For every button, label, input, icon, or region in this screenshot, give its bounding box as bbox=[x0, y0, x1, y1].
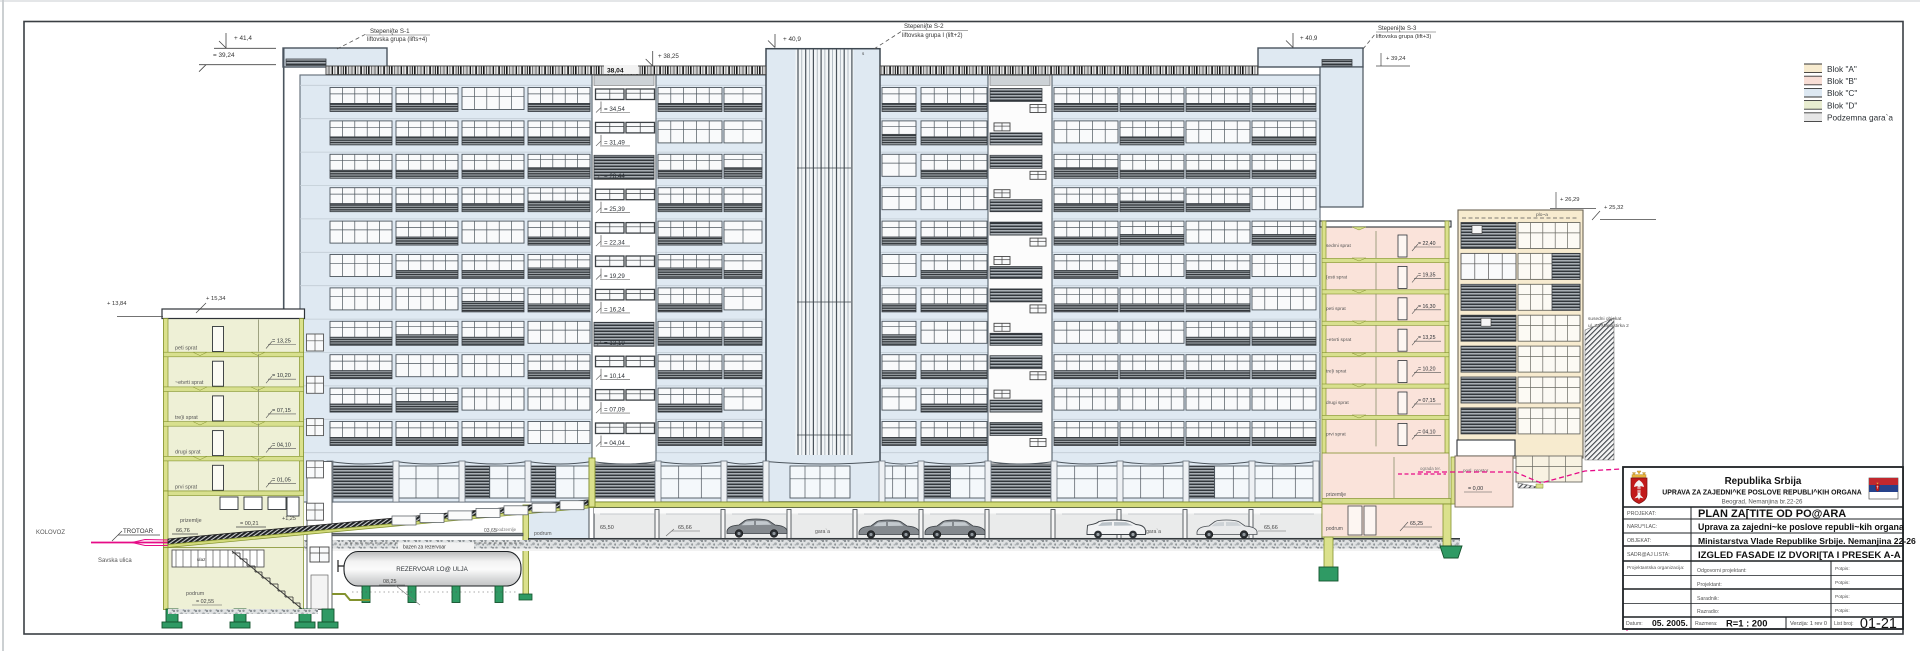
svg-text:Savska ulica: Savska ulica bbox=[98, 558, 132, 564]
svg-text:01-21: 01-21 bbox=[1860, 616, 1897, 632]
svg-text:liftovska grupa (lifts+4): liftovska grupa (lifts+4) bbox=[367, 37, 427, 43]
svg-text:Stepeni{te S-2: Stepeni{te S-2 bbox=[904, 23, 944, 30]
svg-text:ulaz: ulaz bbox=[197, 557, 206, 562]
svg-text:peti sprat: peti sprat bbox=[175, 346, 198, 352]
svg-text:drugi sprat: drugi sprat bbox=[1326, 400, 1349, 406]
svg-text:prizemlje: prizemlje bbox=[180, 518, 202, 524]
svg-text:38,04: 38,04 bbox=[607, 68, 624, 75]
svg-text:= 13,19: = 13,19 bbox=[604, 340, 625, 347]
svg-text:+ 40,9: + 40,9 bbox=[1300, 35, 1318, 42]
svg-text:= 00,21: = 00,21 bbox=[240, 521, 259, 527]
svg-text:66,76: 66,76 bbox=[176, 528, 190, 534]
svg-text:NARU^ILAC:: NARU^ILAC: bbox=[1627, 524, 1657, 530]
svg-text:ograda ter.: ograda ter. bbox=[1420, 466, 1441, 471]
svg-text:= 25,39: = 25,39 bbox=[604, 206, 625, 213]
svg-text:peti sprat: peti sprat bbox=[1326, 306, 1346, 312]
svg-text:TROTOAR: TROTOAR bbox=[123, 528, 154, 535]
svg-text:+ 38,25: + 38,25 bbox=[658, 53, 679, 60]
svg-text:prvi sprat: prvi sprat bbox=[1326, 431, 1346, 437]
svg-text:REZERVOAR LO@ ULJA: REZERVOAR LO@ ULJA bbox=[396, 566, 468, 573]
svg-text:65,50: 65,50 bbox=[600, 525, 614, 531]
svg-text:Potpis:: Potpis: bbox=[1835, 608, 1850, 614]
svg-text:65,66: 65,66 bbox=[1264, 525, 1278, 531]
svg-text:PLAN ZA[TITE OD PO@ARA: PLAN ZA[TITE OD PO@ARA bbox=[1698, 508, 1846, 520]
svg-text:Verzija: 1 rev 0: Verzija: 1 rev 0 bbox=[1790, 621, 1827, 627]
svg-text:Saradnik:: Saradnik: bbox=[1697, 596, 1719, 602]
svg-text:podrum: podrum bbox=[1326, 526, 1343, 532]
svg-text:= 13,25: = 13,25 bbox=[1418, 335, 1436, 341]
svg-text:Potpis:: Potpis: bbox=[1835, 594, 1850, 600]
svg-text:SADR@AJ LISTA:: SADR@AJ LISTA: bbox=[1627, 552, 1670, 558]
svg-text:+ 41,4: + 41,4 bbox=[234, 35, 252, 42]
svg-text:= 31,49: = 31,49 bbox=[604, 139, 625, 146]
svg-text:tre}i sprat: tre}i sprat bbox=[175, 415, 198, 421]
svg-text:tre}i sprat: tre}i sprat bbox=[1326, 369, 1347, 375]
svg-text:ul. Za Manastirka 2: ul. Za Manastirka 2 bbox=[1588, 323, 1629, 329]
svg-text:Odgovorni projektant:: Odgovorni projektant: bbox=[1697, 568, 1747, 574]
svg-text:Republika Srbija: Republika Srbija bbox=[1725, 476, 1802, 487]
svg-text:podzemlje: podzemlje bbox=[496, 527, 517, 532]
svg-text:Blok "B": Blok "B" bbox=[1827, 76, 1857, 86]
svg-text:= 07,15: = 07,15 bbox=[1418, 398, 1436, 404]
svg-text:= 22,34: = 22,34 bbox=[604, 240, 625, 247]
svg-text:plo~a: plo~a bbox=[1536, 212, 1548, 218]
svg-text:= 04,10: = 04,10 bbox=[272, 443, 291, 449]
svg-text:= 34,54: = 34,54 bbox=[604, 106, 625, 113]
svg-text:Datum:: Datum: bbox=[1626, 621, 1643, 627]
svg-text:= 02,55: = 02,55 bbox=[196, 599, 214, 605]
svg-text:Razmera:: Razmera: bbox=[1695, 621, 1718, 627]
svg-text:= 22,40: = 22,40 bbox=[1418, 241, 1436, 247]
svg-text:= 19,29: = 19,29 bbox=[604, 273, 625, 280]
svg-text:Beograd, Nemanjina br.22-26: Beograd, Nemanjina br.22-26 bbox=[1722, 499, 1803, 506]
svg-text:bazen za rezervoar: bazen za rezervoar bbox=[403, 545, 446, 551]
svg-text:gara`a: gara`a bbox=[815, 529, 830, 535]
svg-text:Potpis:: Potpis: bbox=[1835, 580, 1850, 586]
svg-text:= 19,35: = 19,35 bbox=[1418, 272, 1436, 278]
svg-text:podrum: podrum bbox=[534, 531, 552, 537]
svg-text:liftovska grupa I (lift+2): liftovska grupa I (lift+2) bbox=[902, 33, 963, 39]
svg-text:+ 13,84: + 13,84 bbox=[107, 301, 127, 307]
svg-text:08,25: 08,25 bbox=[383, 579, 397, 585]
svg-text:Blok "D": Blok "D" bbox=[1827, 100, 1857, 110]
svg-text:Projektant:: Projektant: bbox=[1697, 582, 1722, 588]
svg-text:drugi sprat: drugi sprat bbox=[175, 450, 201, 456]
svg-text:UPRAVA ZA ZAJEDNI^KE POSLOVE R: UPRAVA ZA ZAJEDNI^KE POSLOVE REPUBLI^KIH… bbox=[1662, 489, 1861, 497]
svg-text:= 10,14: = 10,14 bbox=[604, 373, 625, 380]
svg-text:= 07,09: = 07,09 bbox=[604, 407, 625, 414]
svg-text:gara`a: gara`a bbox=[1146, 529, 1161, 535]
svg-text:= 04,10: = 04,10 bbox=[1418, 429, 1436, 435]
svg-text:susedni objekat: susedni objekat bbox=[1588, 316, 1622, 322]
svg-text:prizemlje: prizemlje bbox=[1326, 492, 1346, 498]
svg-text:OBJEKAT:: OBJEKAT: bbox=[1627, 538, 1651, 544]
svg-text:= 16,30: = 16,30 bbox=[1418, 304, 1436, 310]
svg-text:~etvrti sprat: ~etvrti sprat bbox=[1326, 337, 1352, 343]
svg-text:+ 39,24: + 39,24 bbox=[1386, 56, 1406, 62]
svg-text:+ 26,29: + 26,29 bbox=[1560, 197, 1580, 203]
svg-text:IZGLED FASADE IZ DVORI[TA I PR: IZGLED FASADE IZ DVORI[TA I PRESEK A-A bbox=[1698, 550, 1901, 561]
svg-text:List broj:: List broj: bbox=[1834, 621, 1854, 627]
svg-text:KOLOVOZ: KOLOVOZ bbox=[36, 530, 65, 536]
svg-text:liftovska grupa (lift+3): liftovska grupa (lift+3) bbox=[1376, 34, 1431, 40]
svg-text:Stepeni{te S-3: Stepeni{te S-3 bbox=[1378, 26, 1417, 32]
svg-text:= 07,15: = 07,15 bbox=[272, 408, 291, 414]
svg-text:Projektantska organizacija:: Projektantska organizacija: bbox=[1627, 565, 1684, 571]
svg-text:Podzemna gara`a: Podzemna gara`a bbox=[1827, 113, 1893, 123]
svg-text:= 01,05: = 01,05 bbox=[272, 477, 291, 483]
svg-text:Razradio:: Razradio: bbox=[1697, 609, 1719, 615]
svg-text:Blok "A": Blok "A" bbox=[1827, 64, 1857, 74]
svg-text:Uprava za zajedni~ke poslove r: Uprava za zajedni~ke poslove republi~kih… bbox=[1698, 522, 1904, 532]
svg-text:podrum: podrum bbox=[186, 591, 205, 597]
svg-text:+1,25: +1,25 bbox=[282, 516, 296, 522]
svg-text:+ 25,32: + 25,32 bbox=[1604, 205, 1624, 211]
svg-text:prvi sprat: prvi sprat bbox=[175, 484, 198, 490]
svg-text:Ministarstva Vlade Republike S: Ministarstva Vlade Republike Srbije. Nem… bbox=[1698, 536, 1916, 546]
svg-text:+ 40,9: + 40,9 bbox=[783, 36, 801, 43]
svg-text:Potpis:: Potpis: bbox=[1835, 566, 1850, 572]
svg-text:Blok "C": Blok "C" bbox=[1827, 88, 1857, 98]
svg-text:65,66: 65,66 bbox=[678, 525, 692, 531]
svg-text:65,25: 65,25 bbox=[1410, 521, 1423, 527]
svg-text:= 0,00: = 0,00 bbox=[1468, 486, 1483, 492]
svg-text:PROJEKAT:: PROJEKAT: bbox=[1627, 511, 1656, 517]
svg-text:Stepeni{te S-1: Stepeni{te S-1 bbox=[370, 28, 410, 35]
svg-text:+ 15,34: + 15,34 bbox=[206, 296, 226, 302]
svg-text:~etvrti sprat: ~etvrti sprat bbox=[175, 380, 204, 386]
svg-text:sedmi sprat: sedmi sprat bbox=[1326, 243, 1351, 249]
svg-text:= 10,20: = 10,20 bbox=[1418, 367, 1436, 373]
svg-text:R=1 : 200: R=1 : 200 bbox=[1726, 618, 1767, 629]
svg-text:{esti sprat: {esti sprat bbox=[1326, 274, 1348, 280]
svg-text:= 04,04: = 04,04 bbox=[604, 440, 625, 447]
svg-text:= 28,44: = 28,44 bbox=[604, 173, 625, 180]
svg-text:= 39,24: = 39,24 bbox=[213, 52, 235, 59]
svg-text:= 13,25: = 13,25 bbox=[272, 339, 291, 345]
svg-text:05. 2005.: 05. 2005. bbox=[1652, 618, 1688, 628]
svg-text:= 10,20: = 10,20 bbox=[272, 373, 291, 379]
svg-text:= 16,24: = 16,24 bbox=[604, 306, 625, 313]
